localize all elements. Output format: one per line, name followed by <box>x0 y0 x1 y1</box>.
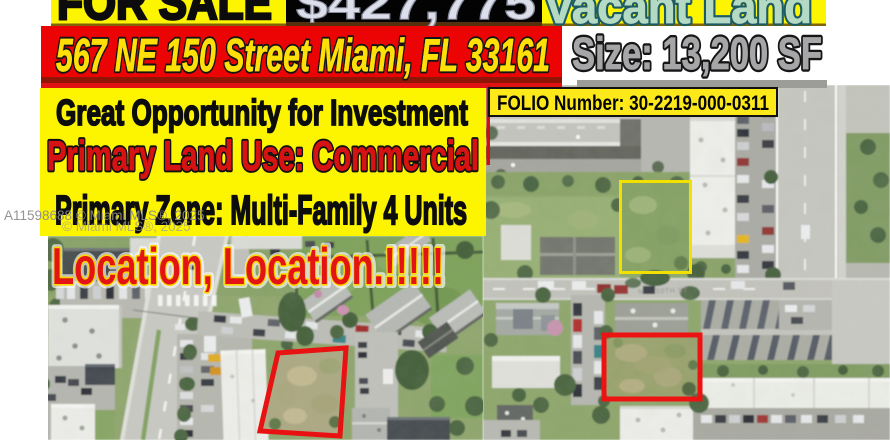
svg-text:FOLIO Number: 30-2219-000-0311: FOLIO Number: 30-2219-000-0311 <box>497 92 769 115</box>
svg-text:Location, Location.!!!!!: Location, Location.!!!!! <box>52 238 444 296</box>
svg-text:$427,775: $427,775 <box>296 0 536 29</box>
svg-text:Great Opportunity for Investme: Great Opportunity for Investment <box>56 92 468 133</box>
svg-text:Primary Land Use: Commercial: Primary Land Use: Commercial <box>47 132 479 179</box>
svg-text:Size: 13,200 SF: Size: 13,200 SF <box>572 28 822 79</box>
svg-text:FOR SALE: FOR SALE <box>57 0 272 30</box>
svg-text:© Miami MLS®, 2025: © Miami MLS®, 2025 <box>62 219 191 234</box>
svg-text:567 NE 150 Street Miami, FL 33: 567 NE 150 Street Miami, FL 33161 <box>56 29 550 81</box>
